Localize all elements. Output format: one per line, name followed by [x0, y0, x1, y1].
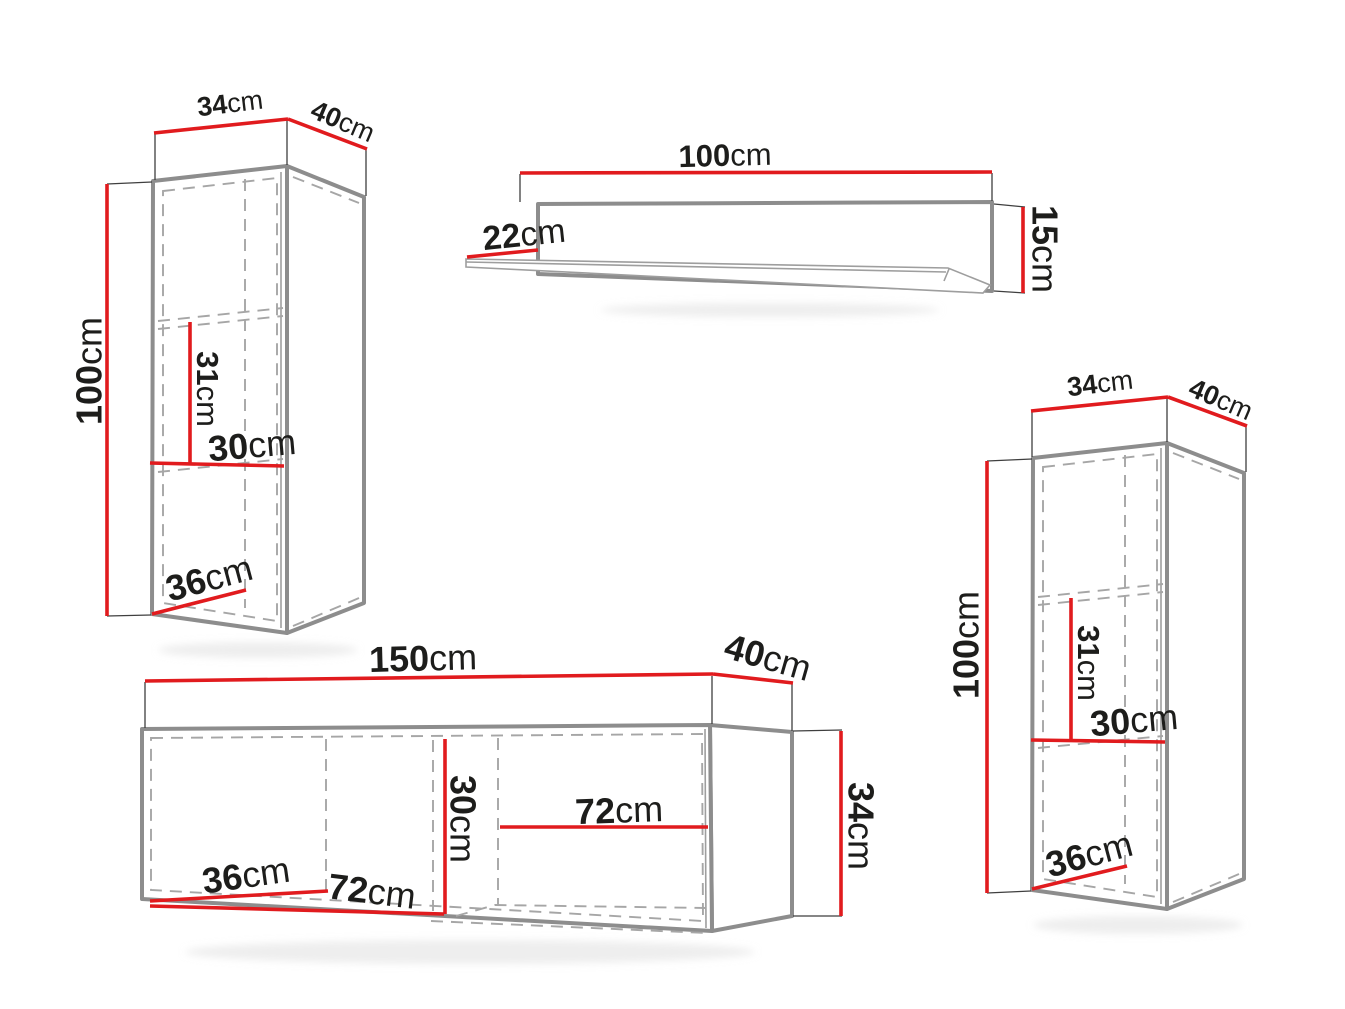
cabinet-left-side-face	[287, 166, 364, 633]
dimension-line-top-width	[1031, 397, 1168, 411]
shadow-tv-stand	[185, 940, 755, 964]
diagram-canvas: 34cm 40cm 100cm 31cm 30cm 36cm 100cm 22c…	[0, 0, 1345, 1009]
extension-line	[994, 291, 1025, 293]
dimension-line-top-width	[154, 119, 288, 133]
cabinet-left-drawing: 34cm 40cm 100cm 31cm 30cm 36cm	[69, 85, 379, 633]
cabinet-left-shelf-offset-label: 31cm	[190, 351, 225, 427]
extension-line	[793, 730, 842, 731]
extension-line	[107, 615, 151, 616]
tv-stand-width-label: 150cm	[368, 636, 477, 680]
cabinet-right-drawing: 34cm 40cm 100cm 31cm 30cm 36cm	[946, 365, 1257, 909]
extension-line	[987, 459, 1032, 461]
dimension-line-width	[520, 172, 992, 173]
tv-stand-side-face	[710, 725, 792, 931]
cabinet-right-shelf-offset-label: 31cm	[1071, 625, 1106, 701]
tv-stand-height-label: 34cm	[840, 782, 881, 870]
tv-stand-right-compartment-label: 72cm	[574, 788, 663, 832]
cabinet-right-inner-width-label: 30cm	[1088, 696, 1179, 745]
extension-line	[994, 204, 1025, 207]
extension-line	[987, 891, 1031, 893]
tv-stand-drawing: 150cm 40cm 30cm 36cm 72cm 72cm 34cm	[142, 625, 881, 933]
shelf-height-label: 15cm	[1024, 205, 1065, 293]
cabinet-right-side-face	[1167, 443, 1244, 909]
tv-stand-inner-height-label: 30cm	[442, 775, 483, 863]
shadow-wall-shelf	[600, 303, 940, 317]
cabinet-left-inner-width-label: 30cm	[206, 421, 297, 470]
extension-line	[107, 182, 152, 184]
shadow-cabinet-right	[1033, 916, 1243, 934]
cabinet-left-height-label: 100cm	[69, 317, 110, 425]
cabinet-right-height-label: 100cm	[946, 591, 987, 699]
shadow-cabinet-left	[158, 642, 358, 658]
cabinet-left-top-width-label: 34cm	[195, 85, 264, 123]
furniture-dimension-diagram: 34cm 40cm 100cm 31cm 30cm 36cm 100cm 22c…	[0, 0, 1345, 1009]
shelf-width-label: 100cm	[678, 137, 772, 174]
wall-shelf-drawing: 100cm 22cm 15cm	[466, 137, 1065, 293]
cabinet-right-top-width-label: 34cm	[1065, 365, 1134, 403]
